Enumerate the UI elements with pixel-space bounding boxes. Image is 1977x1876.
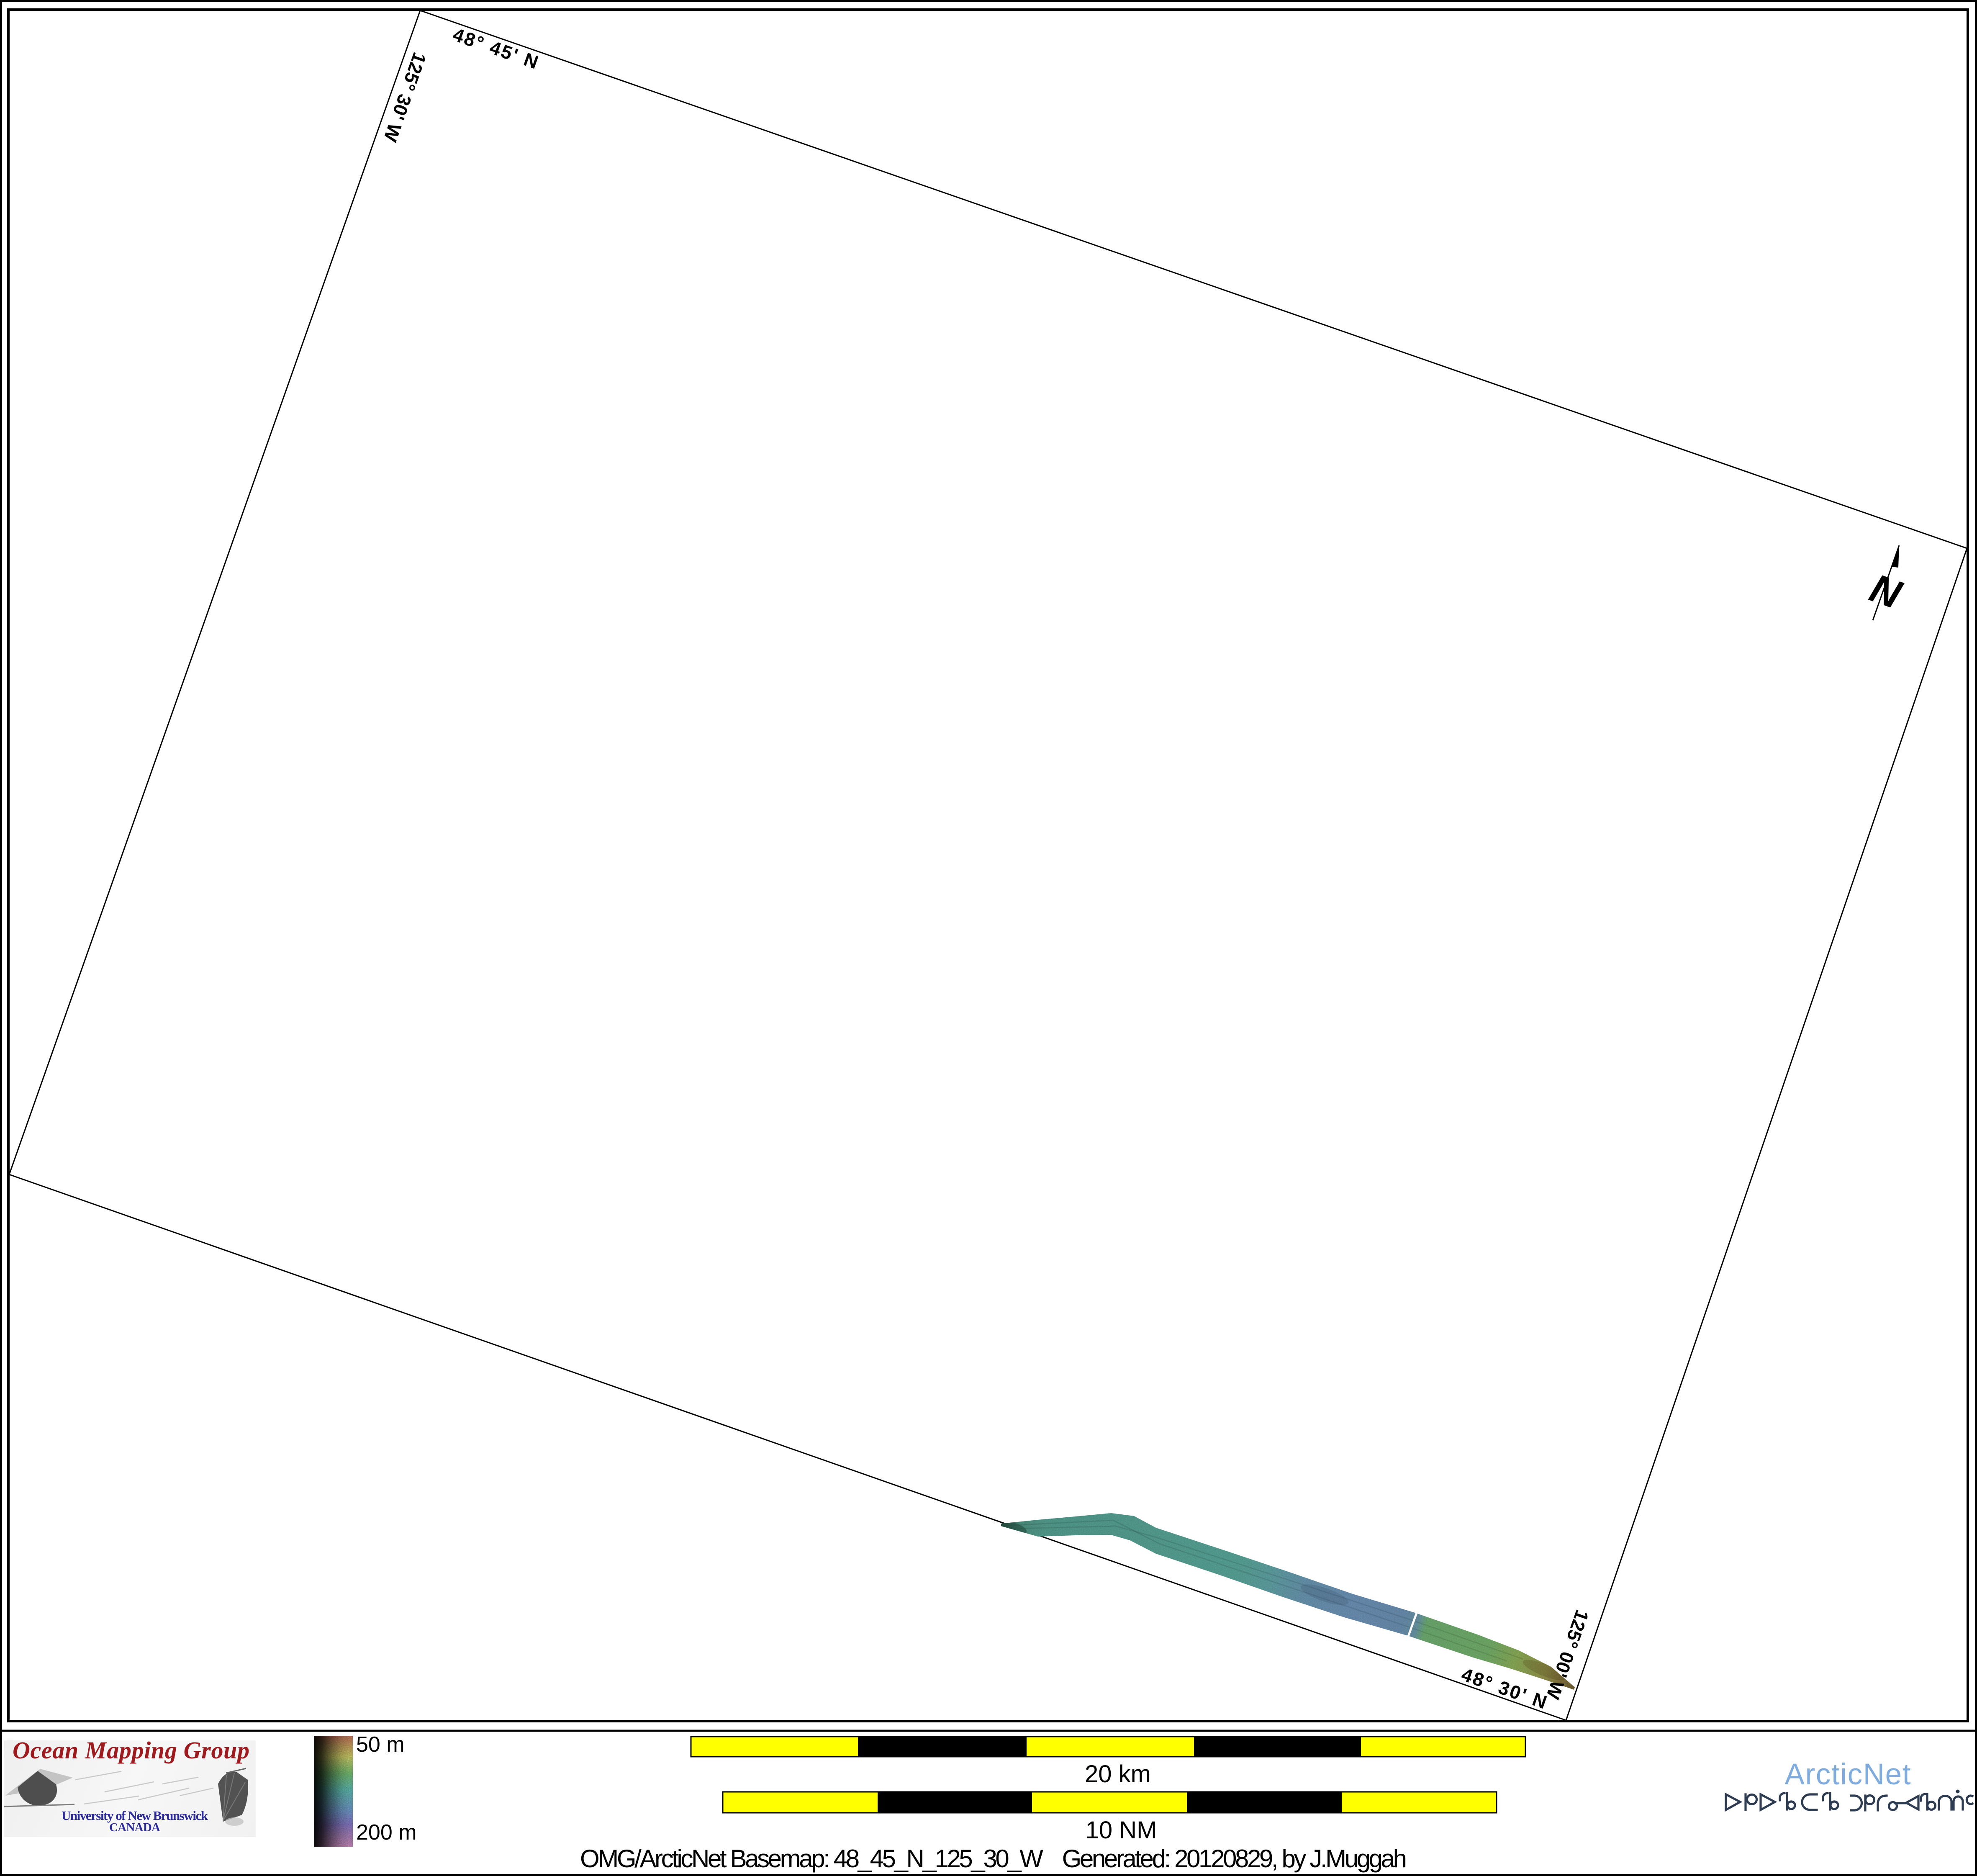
svg-text:CANADA: CANADA: [109, 1821, 160, 1834]
svg-text:200 m: 200 m: [356, 1820, 417, 1845]
svg-text:50 m: 50 m: [356, 1732, 405, 1757]
svg-text:10 NM: 10 NM: [1086, 1817, 1157, 1844]
svg-text:Ocean Mapping Group: Ocean Mapping Group: [13, 1737, 249, 1764]
svg-text:ArcticNet: ArcticNet: [1785, 1758, 1911, 1791]
svg-text:OMG/ArcticNet Basemap: 48_45_N: OMG/ArcticNet Basemap: 48_45_N_125_30_W …: [580, 1845, 1407, 1873]
svg-text:20 km: 20 km: [1085, 1760, 1151, 1788]
